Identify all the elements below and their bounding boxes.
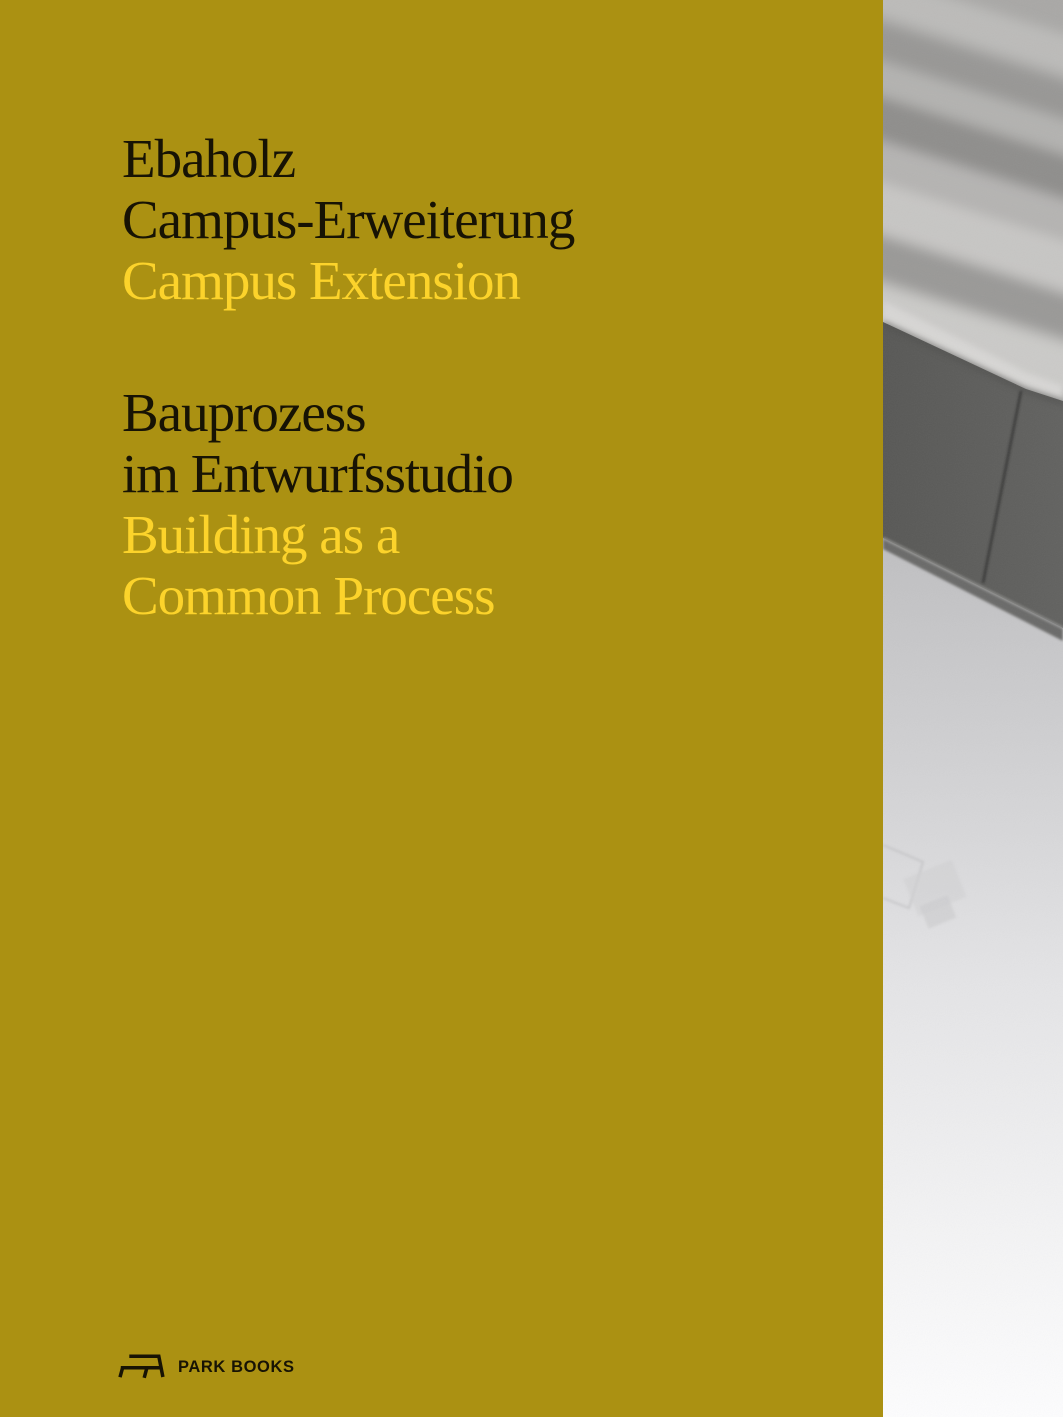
park-bench-icon bbox=[118, 1352, 166, 1380]
publisher-name: PARK BOOKS bbox=[178, 1355, 295, 1377]
subtitle-en-line-2: Common Process bbox=[122, 565, 513, 626]
publisher-mark: PARK BOOKS bbox=[118, 1351, 295, 1380]
subtitle-de-line-1: Bauprozess bbox=[122, 382, 513, 443]
title-block: Ebaholz Campus-Erweiterung Campus Extens… bbox=[122, 128, 574, 311]
subtitle-block: Bauprozess im Entwurfsstudio Building as… bbox=[122, 382, 513, 626]
title-de-line-2: Campus-Erweiterung bbox=[122, 189, 574, 250]
subtitle-en-line-1: Building as a bbox=[122, 504, 513, 565]
photo-strip-graphic bbox=[883, 0, 1063, 1417]
cover-photo-strip bbox=[883, 0, 1063, 1417]
title-en-line-1: Campus Extension bbox=[122, 250, 574, 311]
book-cover: Ebaholz Campus-Erweiterung Campus Extens… bbox=[0, 0, 1063, 1417]
title-de-line-1: Ebaholz bbox=[122, 128, 574, 189]
subtitle-de-line-2: im Entwurfsstudio bbox=[122, 443, 513, 504]
